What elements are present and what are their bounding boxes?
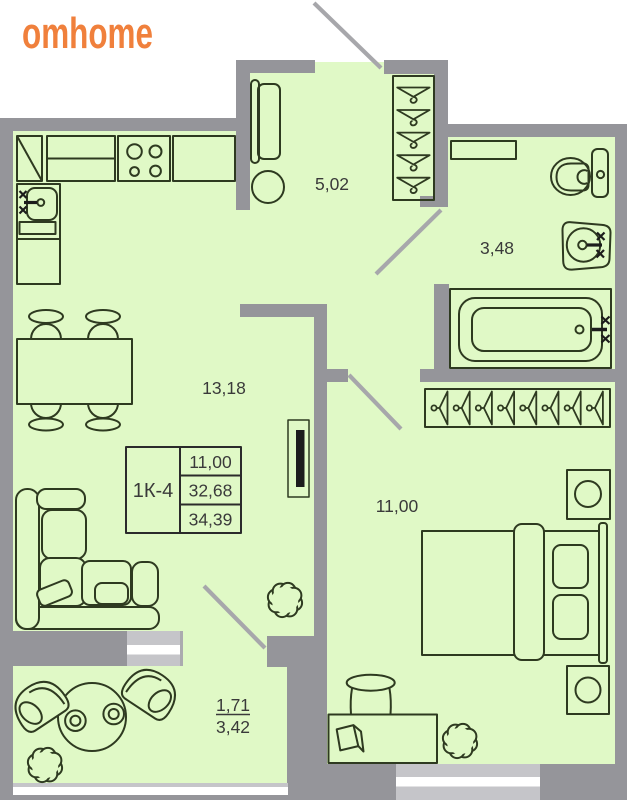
svg-text:omhome: omhome (22, 9, 153, 58)
svg-text:13,18: 13,18 (202, 378, 246, 398)
svg-text:32,68: 32,68 (189, 481, 233, 501)
svg-text:1,71: 1,71 (216, 695, 250, 715)
svg-text:11,00: 11,00 (376, 496, 419, 516)
svg-text:3,48: 3,48 (480, 238, 514, 258)
svg-text:11,00: 11,00 (189, 452, 232, 472)
svg-text:3,42: 3,42 (216, 717, 250, 737)
svg-text:1К-4: 1К-4 (133, 480, 174, 502)
svg-text:5,02: 5,02 (315, 174, 349, 194)
svg-text:34,39: 34,39 (189, 510, 233, 530)
